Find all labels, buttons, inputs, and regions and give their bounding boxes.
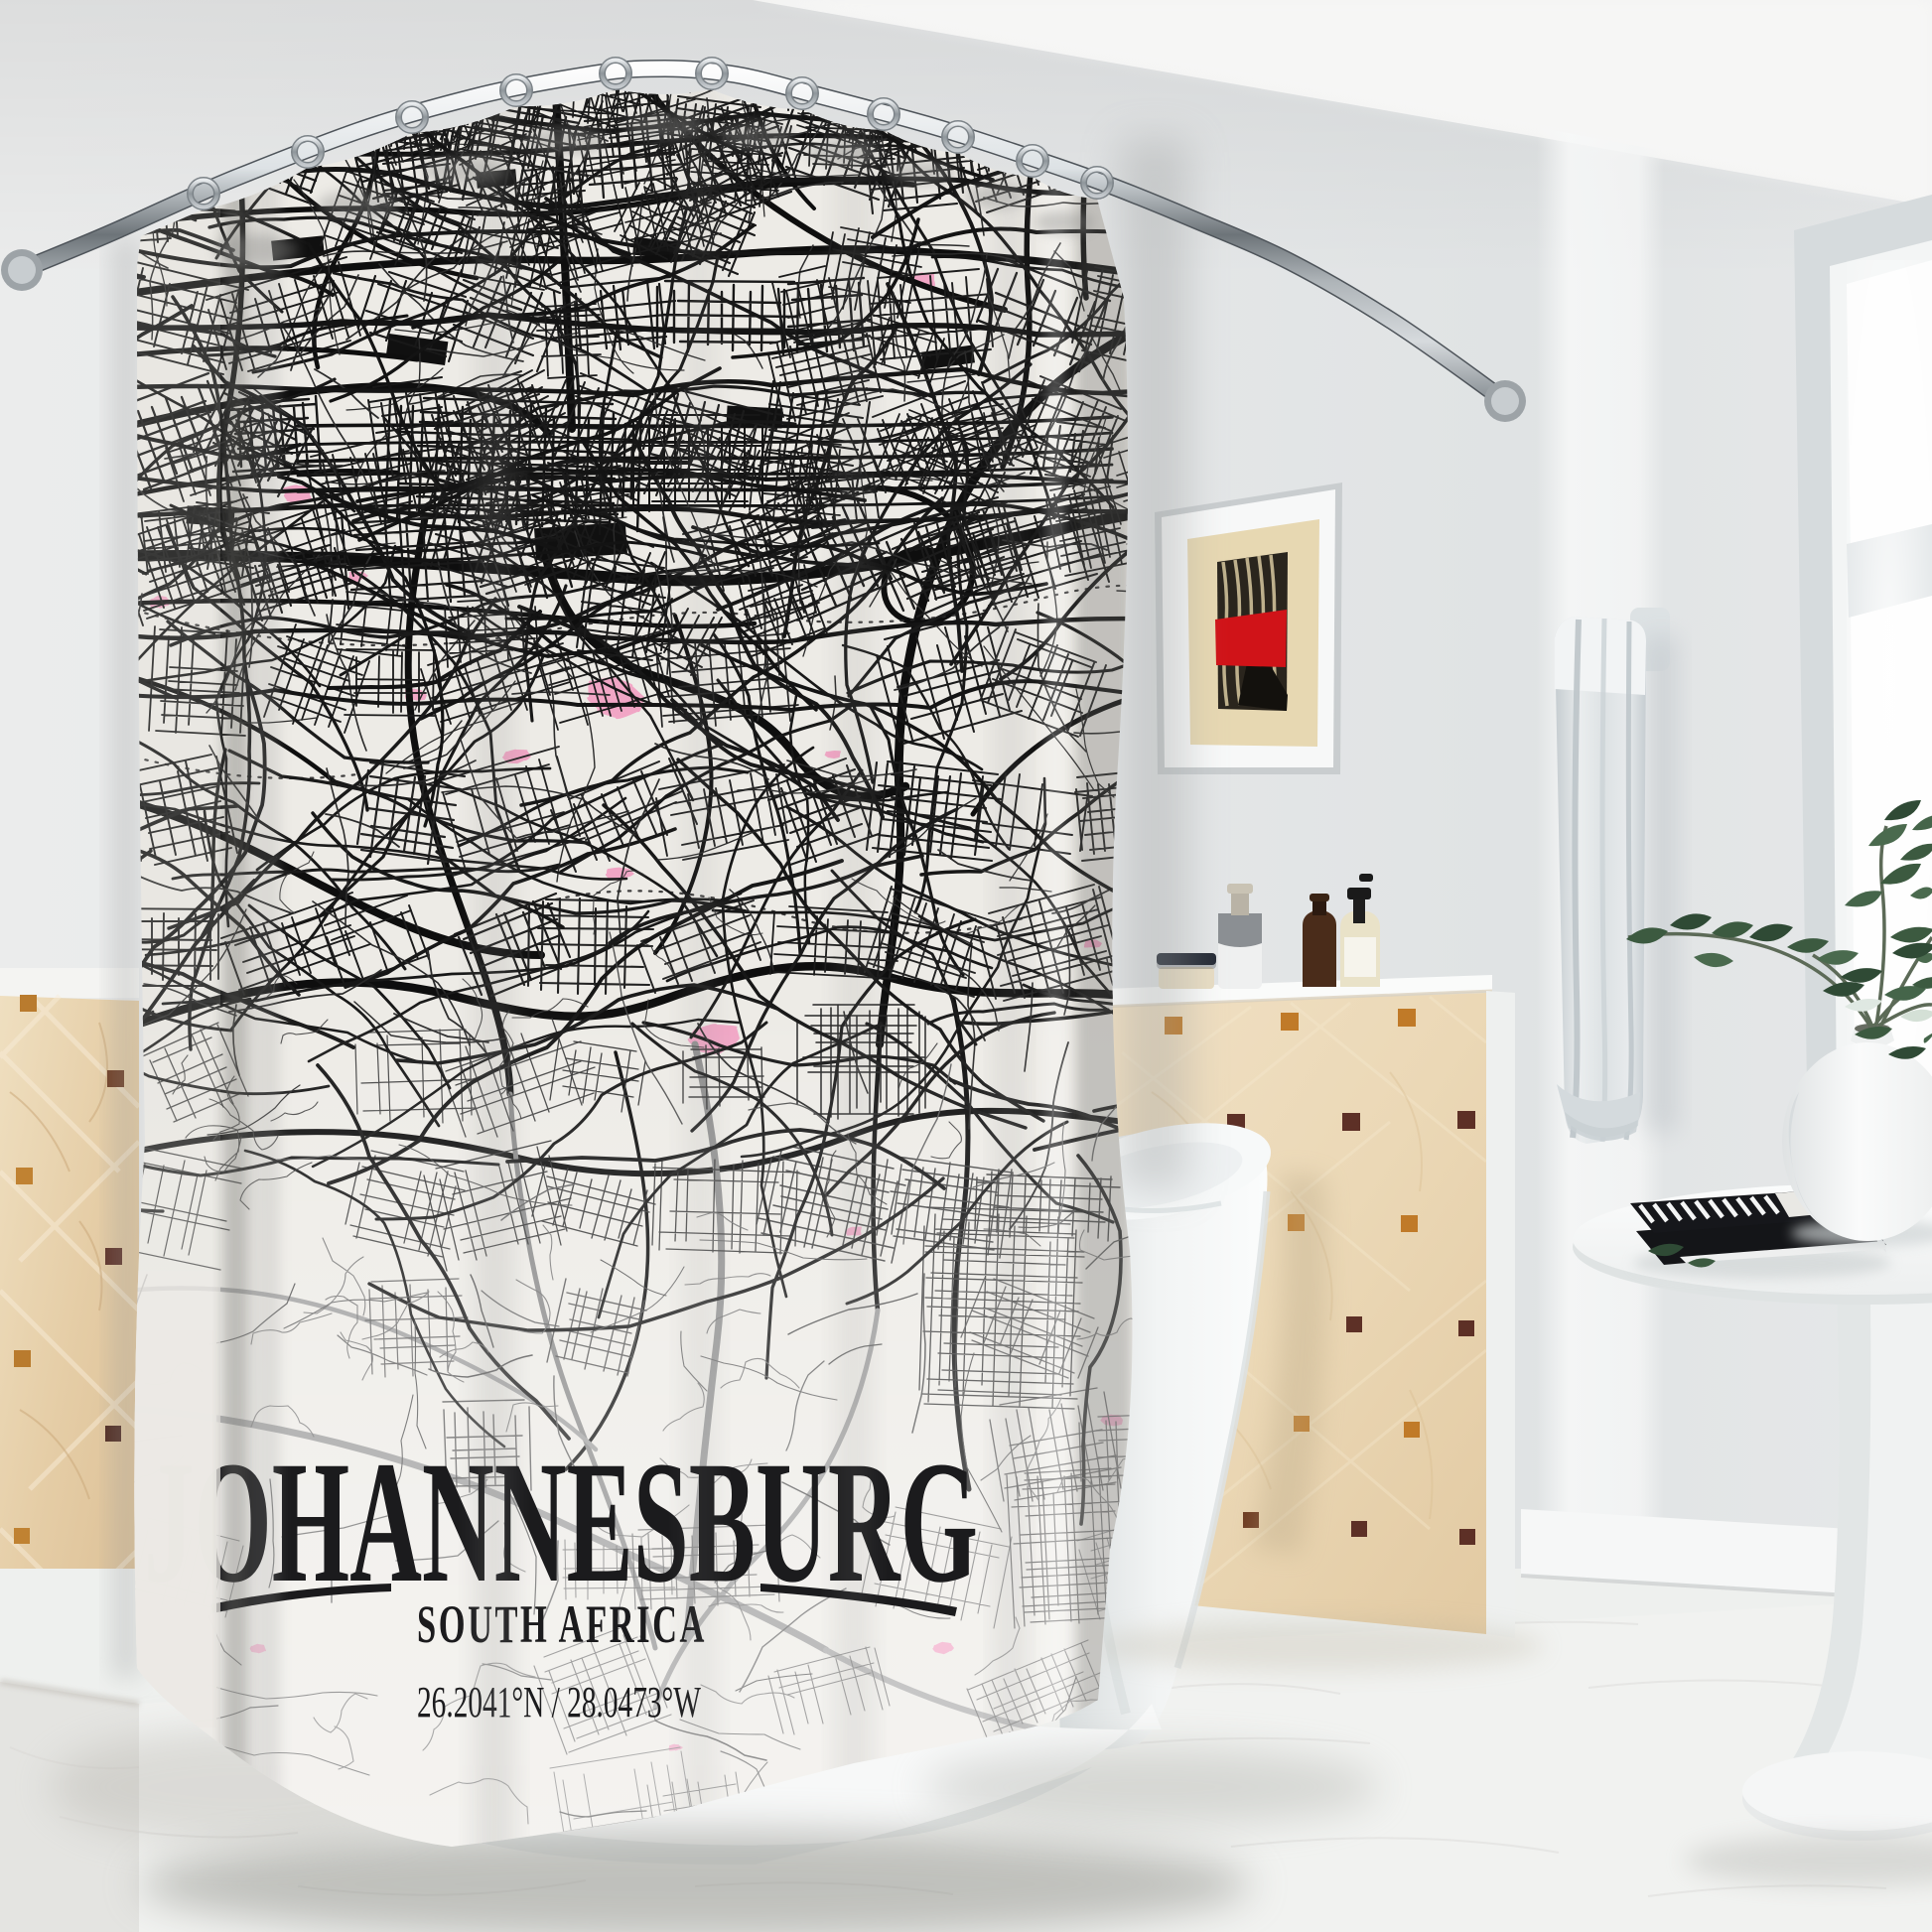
svg-text:26.2041°N / 28.0473°W: 26.2041°N / 28.0473°W xyxy=(417,1678,701,1726)
svg-text:SOUTH AFRICA: SOUTH AFRICA xyxy=(417,1594,707,1654)
